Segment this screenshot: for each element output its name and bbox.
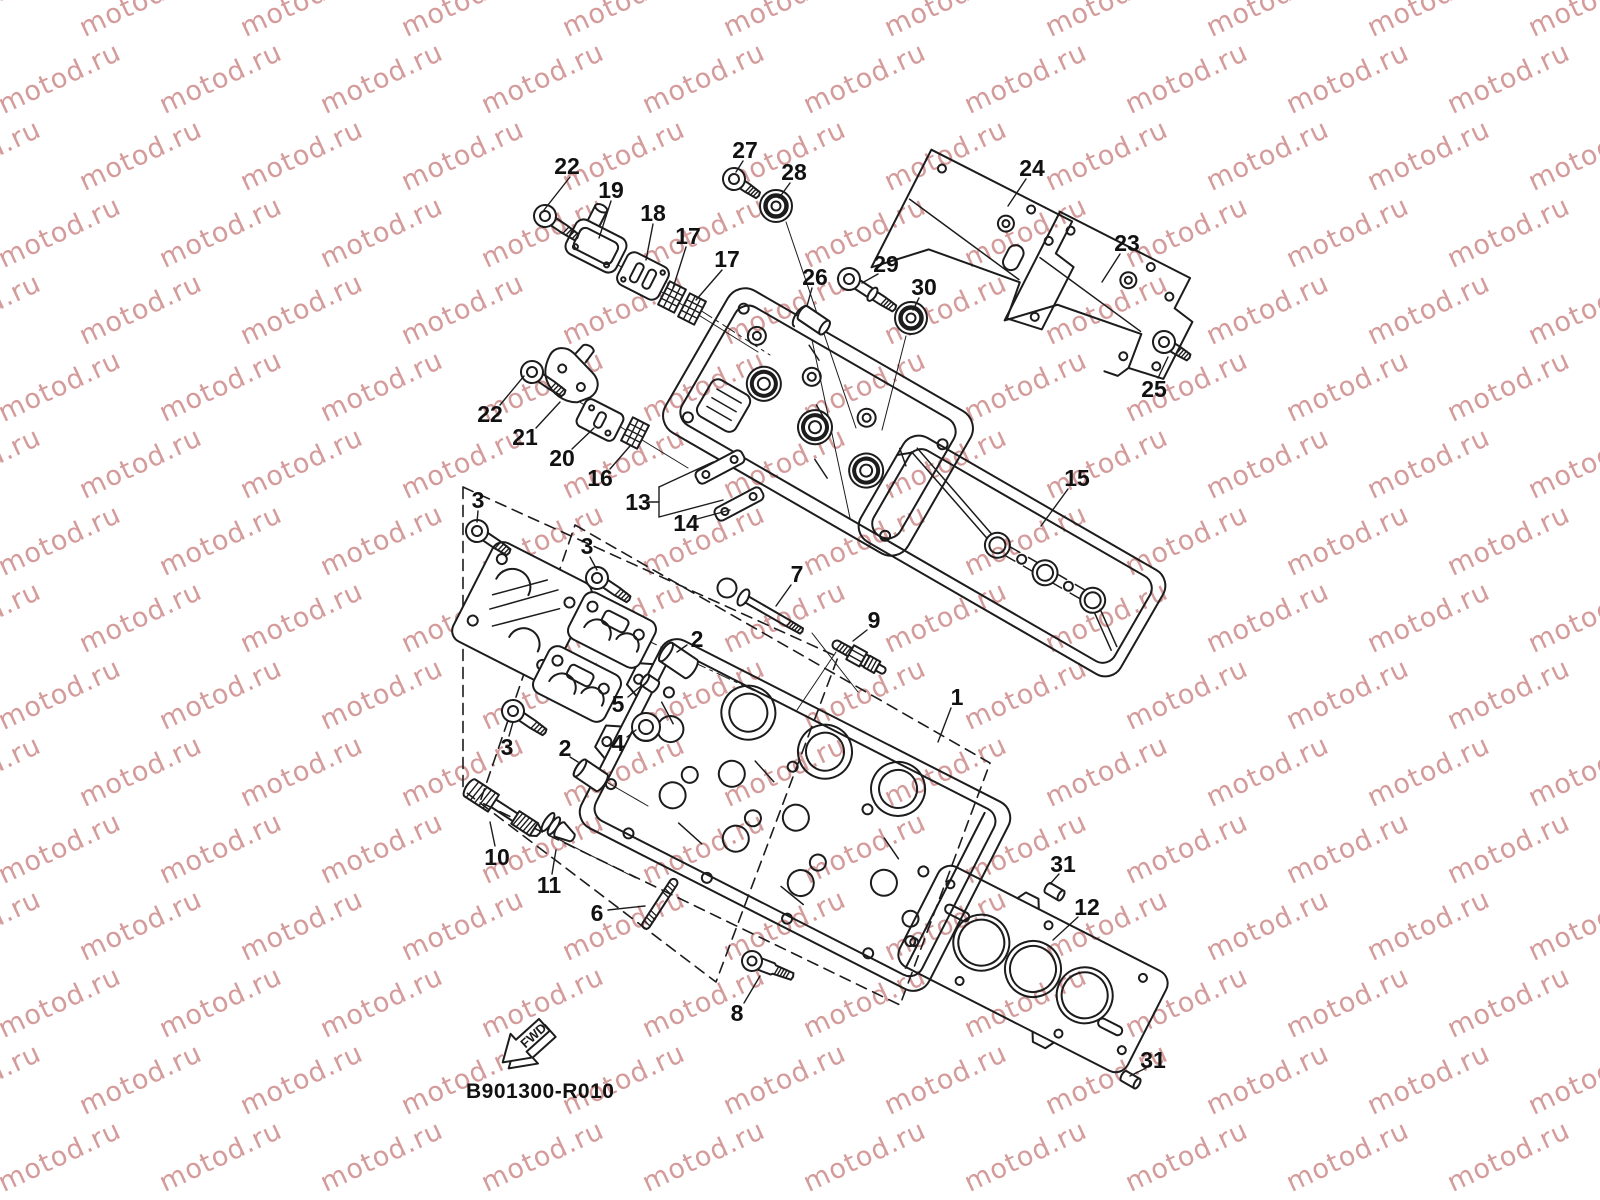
- part-callout-2: 2: [691, 626, 704, 652]
- exploded-view-drawing: FWD 221918171727282629302423252221201613…: [0, 0, 1600, 1200]
- part-callout-6: 6: [591, 900, 604, 926]
- bolt-27: [719, 164, 765, 205]
- part-callout-25: 25: [1141, 376, 1167, 402]
- leader-line-1: [938, 708, 951, 742]
- leader-line-21: [536, 402, 560, 428]
- part-callout-19: 19: [598, 177, 624, 203]
- leader-line-6: [608, 906, 645, 910]
- part-callout-1: 1: [951, 684, 964, 710]
- part-callout-24: 24: [1019, 155, 1045, 181]
- part-cylinder-head-gasket: [889, 853, 1176, 1085]
- part-callout-29: 29: [873, 251, 899, 277]
- leader-line-16: [610, 446, 630, 469]
- part-callout-20: 20: [549, 445, 575, 471]
- part-bracket-21: [535, 332, 613, 411]
- parts-diagram-page: { "figure": { "code": "B901300-R010" }, …: [0, 0, 1600, 1200]
- part-callout-8: 8: [731, 1000, 744, 1026]
- part-callout-12: 12: [1074, 894, 1100, 920]
- leader-line-7: [776, 585, 791, 606]
- fwd-arrow: FWD: [492, 1013, 561, 1080]
- leader-line-17: [673, 247, 686, 288]
- part-callout-5: 5: [612, 691, 625, 717]
- leader-line-11: [552, 850, 556, 874]
- leader-line-10: [490, 822, 495, 846]
- leader-line-23: [1102, 254, 1120, 282]
- part-callout-21: 21: [512, 424, 538, 450]
- part-callout-7: 7: [791, 561, 804, 587]
- part-callout-2: 2: [559, 735, 572, 761]
- part-damper-16: [621, 417, 649, 448]
- part-callout-23: 23: [1114, 230, 1140, 256]
- part-cylinder-head: [561, 627, 1016, 998]
- part-callout-13: 13: [625, 489, 651, 515]
- dowel-31a: [1043, 882, 1066, 902]
- part-callout-18: 18: [640, 200, 666, 226]
- part-callout-11: 11: [537, 872, 562, 898]
- stud-6: [641, 877, 679, 930]
- part-callout-26: 26: [802, 264, 828, 290]
- leader-line-9: [853, 630, 867, 641]
- part-callout-31: 31: [1050, 851, 1076, 877]
- part-callout-15: 15: [1064, 465, 1090, 491]
- part-callout-28: 28: [781, 159, 807, 185]
- leader-line-22: [500, 376, 524, 405]
- leader-line-20: [572, 428, 594, 449]
- part-head-cover-gasket: [852, 429, 1172, 683]
- leader-line-15: [1041, 489, 1068, 526]
- part-callout-9: 9: [868, 607, 881, 633]
- nozzle-10: [461, 777, 545, 841]
- bolt-8: [739, 948, 797, 986]
- seal-30: [895, 302, 927, 334]
- part-callout-27: 27: [732, 137, 758, 163]
- spark-plug-9: [829, 636, 889, 679]
- plug-4: [632, 713, 660, 741]
- leader-line-22: [544, 177, 570, 210]
- part-callout-3: 3: [501, 734, 514, 760]
- leader-line-18: [646, 224, 653, 260]
- part-callout-4: 4: [612, 730, 625, 756]
- part-callout-3: 3: [581, 533, 594, 559]
- part-callout-10: 10: [484, 844, 510, 870]
- part-callout-3: 3: [472, 487, 485, 513]
- part-callout-14: 14: [673, 510, 699, 536]
- axis-lines: [497, 222, 906, 878]
- figure-code: B901300-R010: [466, 1080, 614, 1104]
- part-callout-17: 17: [675, 223, 701, 249]
- part-callout-22: 22: [554, 153, 580, 179]
- part-callout-31: 31: [1140, 1047, 1166, 1073]
- leader-line-12: [1053, 917, 1078, 940]
- part-strip-14: [713, 486, 765, 523]
- part-callout-16: 16: [587, 465, 613, 491]
- seal-28: [760, 190, 792, 222]
- dowel-31b: [1119, 1070, 1142, 1090]
- part-callout-22: 22: [477, 401, 503, 427]
- part-plate-gasket-23: [1005, 212, 1210, 397]
- dowel-26: [790, 303, 832, 342]
- leader-line-17: [696, 270, 722, 300]
- leader-line-8: [744, 976, 760, 1003]
- leader-line-24: [1008, 179, 1026, 206]
- seal-11: [539, 811, 579, 847]
- part-callout-30: 30: [911, 274, 937, 300]
- part-callout-17: 17: [714, 246, 740, 272]
